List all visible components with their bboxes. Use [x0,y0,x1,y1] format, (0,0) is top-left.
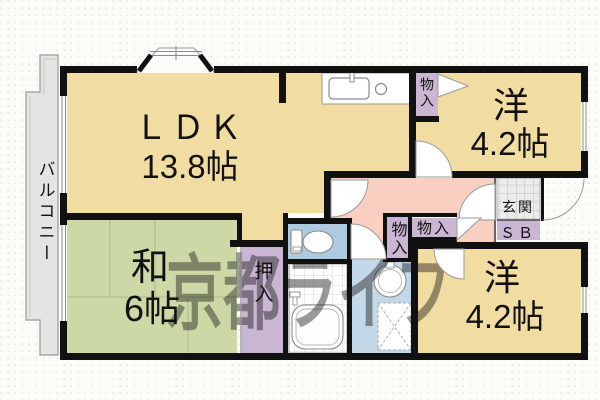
label-monoire-mid: 物入 [389,221,408,257]
label-oshiire: 押入 [252,261,274,307]
label-western-bottom-size: 4.2帖 [466,298,545,335]
label-ldk-size: 13.8帖 [141,148,238,185]
label-entrance: 玄関 [502,199,534,215]
label-western-bottom: 洋 [484,257,520,298]
label-shoe-box: ＳＢ [500,225,536,242]
label-japanese-room: 和 [131,247,169,289]
floor-plan-canvas: 京都ライフ [0,0,600,400]
label-ldk: ＬＤＫ [135,109,246,146]
label-western-top: 洋 [493,85,529,126]
label-japanese-room-size: 6帖 [124,288,180,329]
label-balcony: バルコニー [36,160,55,265]
kitchen-sink-icon [322,72,412,104]
label-monoire-side: 物入 [417,220,451,237]
label-monoire-top: 物入 [419,77,435,109]
floor-plan: 京都ライフ [0,0,600,400]
label-western-top-size: 4.2帖 [471,125,550,162]
